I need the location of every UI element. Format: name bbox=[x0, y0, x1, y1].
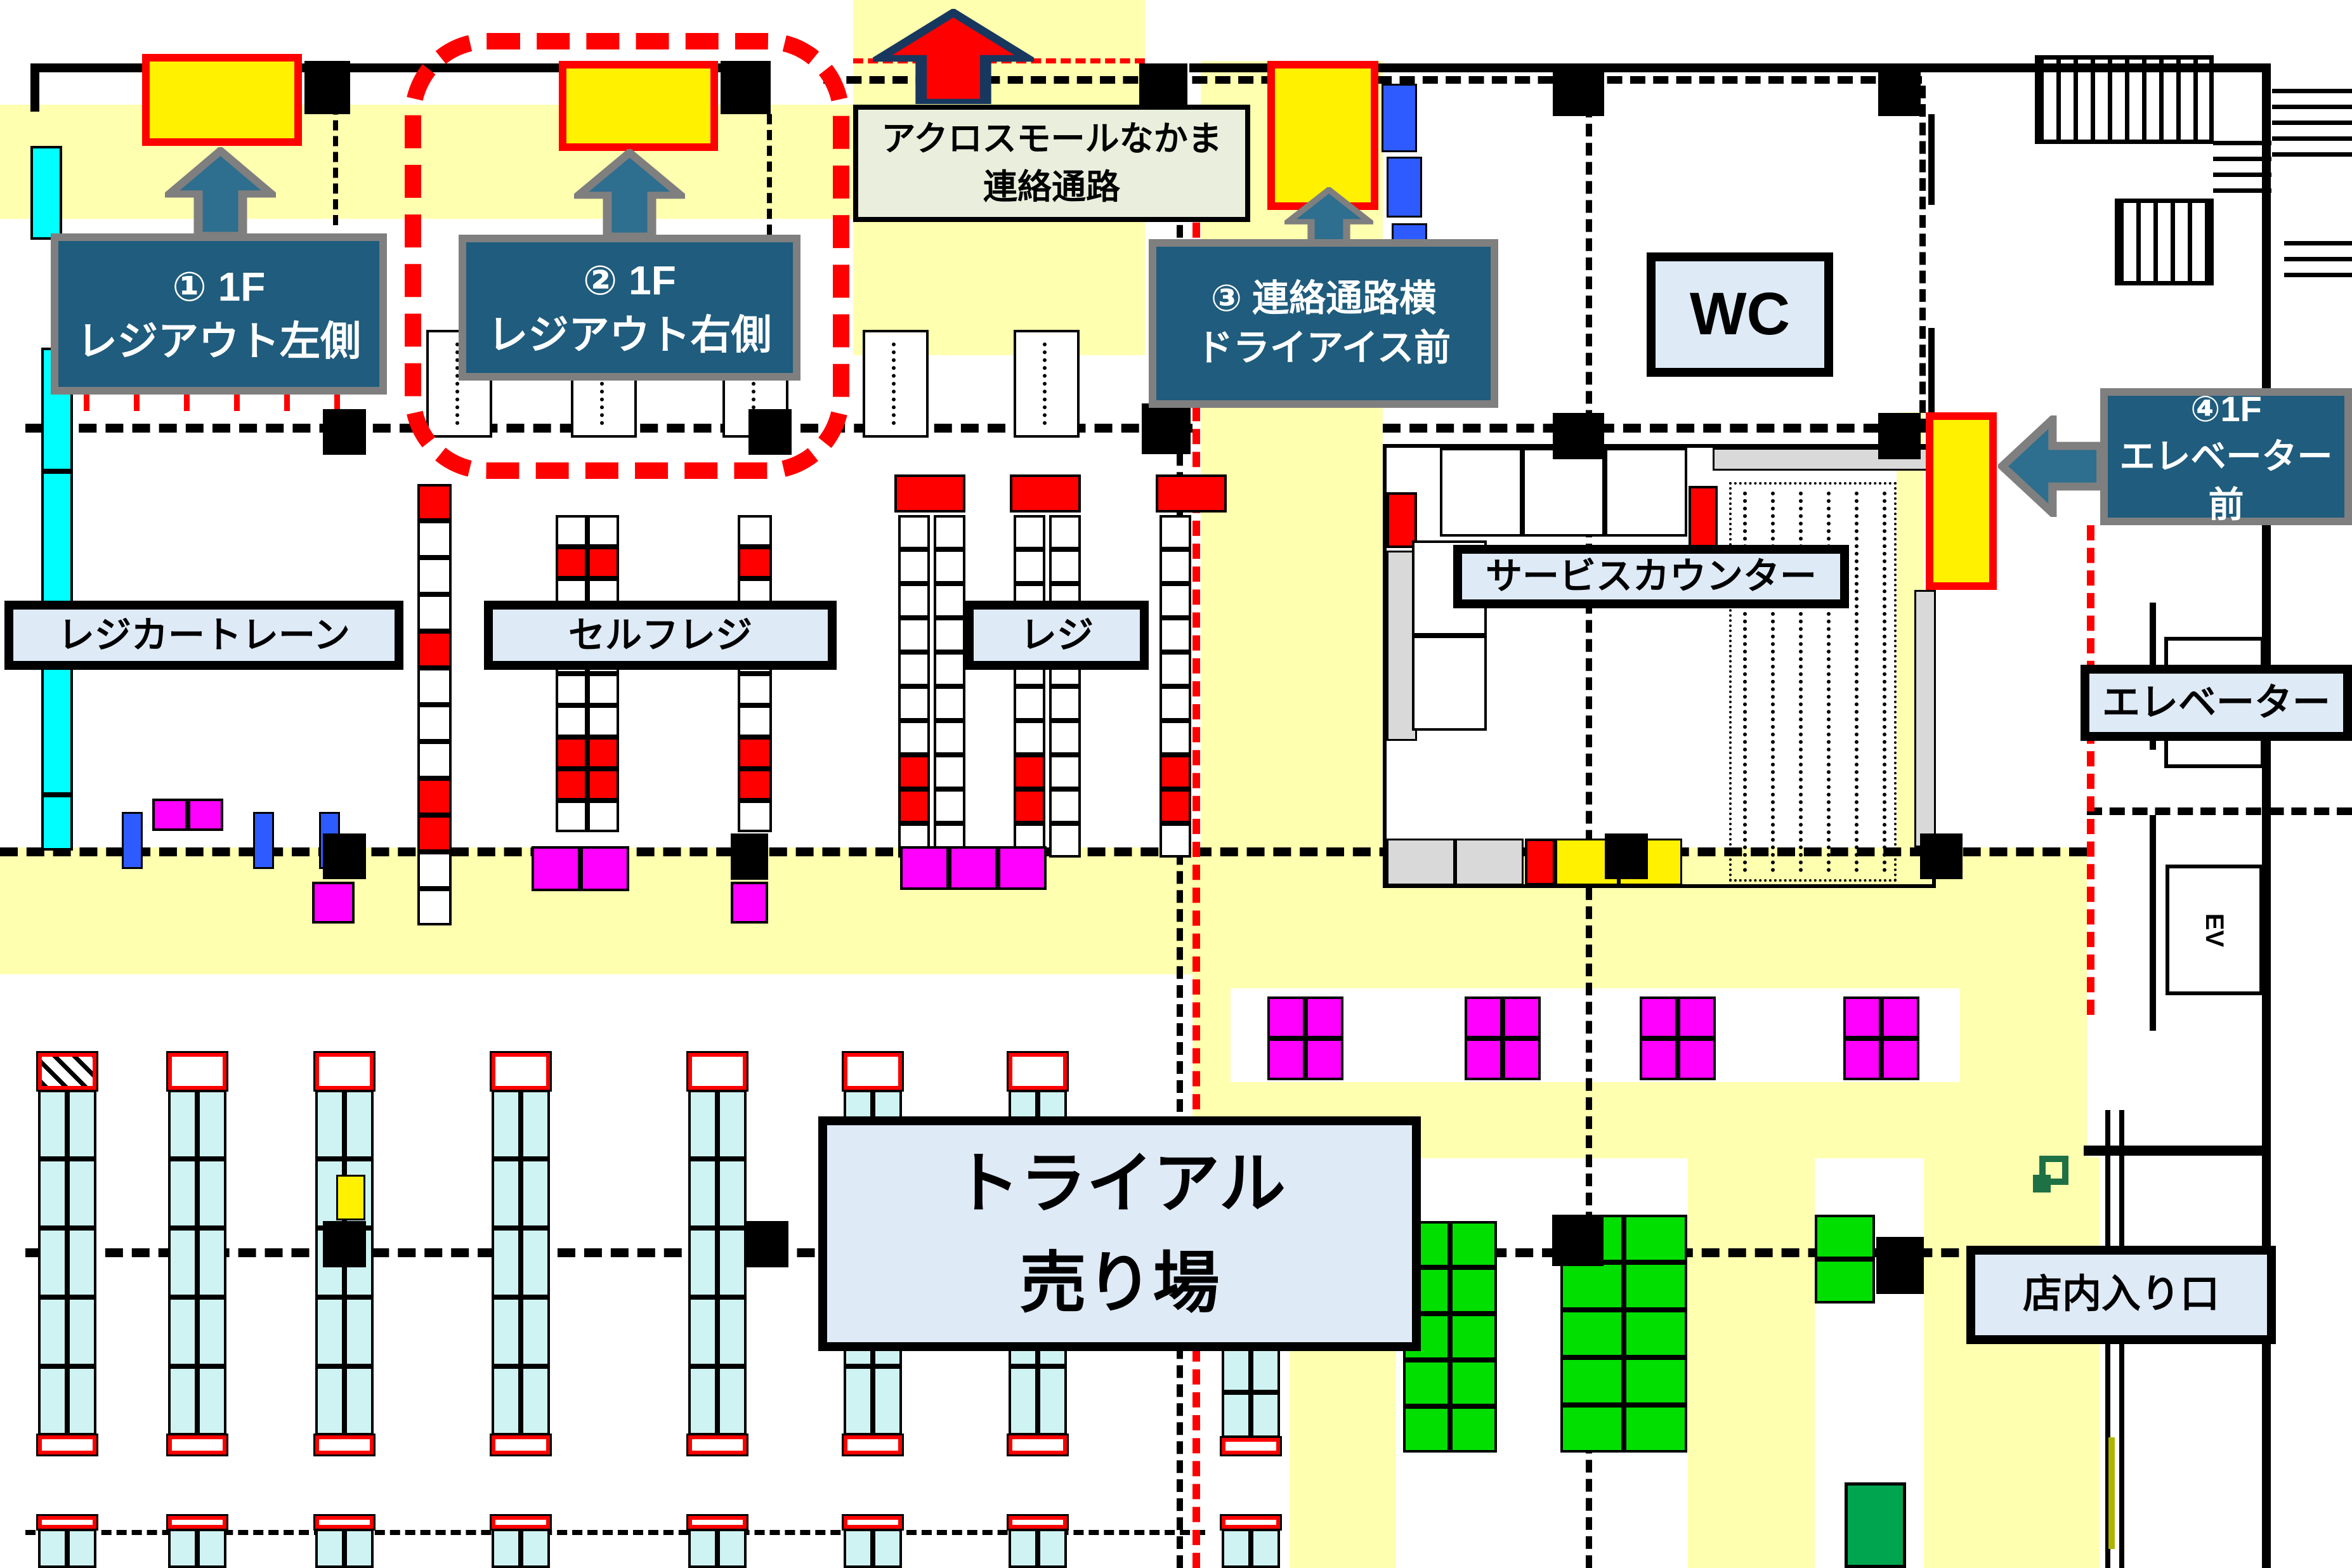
promo-table-cell bbox=[1267, 1038, 1305, 1080]
checkout-lane-cell bbox=[1014, 515, 1045, 549]
promo-table-cell bbox=[1678, 996, 1716, 1038]
green-shelf-cell bbox=[1624, 1310, 1687, 1357]
shelf-cell bbox=[1222, 1347, 1251, 1392]
green-shelf-cell bbox=[1560, 1357, 1624, 1405]
shelf-cell bbox=[492, 1366, 521, 1435]
green-shelf-cell bbox=[1450, 1406, 1497, 1453]
green-shelf-cell bbox=[1403, 1406, 1450, 1453]
shelf-cell bbox=[717, 1090, 747, 1159]
magenta-fixture bbox=[998, 846, 1047, 890]
shelf-cell bbox=[521, 1366, 550, 1435]
service-counter-text: サービスカウンター bbox=[1486, 552, 1817, 600]
checkout-lane-cell bbox=[1160, 686, 1191, 721]
selfcheckout-lane-cell bbox=[738, 547, 772, 578]
lane-cell bbox=[417, 889, 452, 925]
up-arrow-1-icon bbox=[165, 147, 276, 237]
magenta-fixture bbox=[152, 799, 188, 831]
shelf-cell bbox=[38, 1529, 67, 1568]
checkout-lane-cell bbox=[1160, 618, 1191, 652]
magenta-fixture bbox=[532, 846, 580, 891]
blue-fixture-1 bbox=[1382, 84, 1417, 152]
blue-floor-marker bbox=[122, 812, 143, 869]
shelf-cell bbox=[717, 1228, 747, 1297]
callout-passage-side-dry-ice: ③ 連絡通路横 ドライアイス前 bbox=[1149, 239, 1498, 408]
pillar bbox=[1878, 65, 1921, 116]
selfcheckout-lane-cell bbox=[587, 769, 619, 800]
checkout-lane-cell bbox=[1049, 755, 1081, 789]
shelf-cell bbox=[1251, 1347, 1280, 1392]
shelf-cap bbox=[688, 1516, 747, 1529]
shelf-cell bbox=[315, 1090, 344, 1159]
pillar bbox=[1605, 833, 1648, 879]
checkout-lane-cell bbox=[1160, 652, 1191, 686]
checkout-lane-cell bbox=[898, 549, 930, 584]
selfcheckout-lane-cell bbox=[556, 769, 587, 800]
checkout-lane-cell bbox=[934, 515, 965, 549]
lane-cell bbox=[417, 484, 452, 521]
magenta-fixture bbox=[312, 882, 355, 924]
shelf-cell bbox=[688, 1297, 717, 1366]
pillar bbox=[304, 61, 350, 114]
corner-arrow-icon-fill bbox=[2033, 1175, 2051, 1192]
green-shelf-cell bbox=[1624, 1357, 1687, 1405]
checkout-lane-cell bbox=[1049, 789, 1081, 823]
shelf-cell bbox=[168, 1090, 197, 1159]
selfcheckout-lane-cell bbox=[556, 674, 587, 705]
shelf-cell bbox=[521, 1228, 550, 1297]
selfcheckout-lane-cell bbox=[738, 674, 772, 705]
checkout-lane-cell bbox=[898, 584, 930, 618]
shelf-foot bbox=[315, 1435, 374, 1454]
elevator-text: エレベーター bbox=[2102, 678, 2330, 728]
selfcheckout-lane-cell bbox=[587, 674, 619, 705]
shelf-foot bbox=[1222, 1438, 1280, 1454]
callout-2-line1: ② 1F bbox=[583, 253, 676, 308]
shelf-cell bbox=[315, 1366, 344, 1435]
shelf-cell bbox=[1038, 1366, 1067, 1435]
label-wc: WC bbox=[1647, 252, 1833, 377]
checkout-lane-cell bbox=[1049, 823, 1081, 858]
checkout-lane-cell bbox=[898, 618, 930, 652]
pillar bbox=[745, 1221, 788, 1267]
checkout-lane-cell bbox=[1014, 549, 1045, 584]
selfcheckout-lane-cell bbox=[556, 547, 587, 578]
pillar bbox=[1920, 833, 1963, 879]
checkout-lane-cap bbox=[894, 474, 965, 513]
shelf-cell bbox=[688, 1090, 717, 1159]
shelf-cap bbox=[688, 1053, 747, 1090]
shelf-cell bbox=[492, 1159, 521, 1228]
shelf-cap bbox=[168, 1053, 226, 1090]
checkout-lane-cell bbox=[934, 755, 965, 789]
blue-floor-marker bbox=[253, 812, 274, 869]
pillar bbox=[731, 833, 768, 880]
shelf-cap bbox=[315, 1516, 374, 1529]
green-shelf-cell bbox=[1450, 1221, 1497, 1267]
pillar bbox=[1878, 413, 1921, 459]
callout-1-line1: ① 1F bbox=[173, 259, 266, 314]
checkout-text: レジ bbox=[1020, 611, 1094, 659]
shelf-cell bbox=[67, 1529, 96, 1568]
checkout-lane-cell bbox=[1160, 515, 1191, 549]
green-shelf-cell bbox=[1624, 1215, 1687, 1262]
shelf-cell bbox=[717, 1159, 747, 1228]
callout-1-line2: レジアウト左側 bbox=[77, 314, 361, 369]
callout-1f-elevator-front: ④1F エレベーター前 bbox=[2100, 388, 2352, 525]
shelf-cell bbox=[38, 1159, 67, 1228]
lane-cell bbox=[417, 815, 452, 852]
callout-2-line2: レジアウト右側 bbox=[488, 308, 772, 362]
shelf-cell bbox=[344, 1090, 374, 1159]
pillar bbox=[1142, 403, 1191, 454]
promo-table-cell bbox=[1465, 996, 1503, 1038]
shelf-cell bbox=[521, 1090, 550, 1159]
shelf-cell bbox=[521, 1297, 550, 1366]
cart-corral-line bbox=[1883, 492, 1886, 872]
label-service-counter: サービスカウンター bbox=[1453, 545, 1849, 608]
green-shelf-cell bbox=[1624, 1262, 1687, 1310]
shelf-cell bbox=[873, 1366, 902, 1435]
shelf-module bbox=[1014, 330, 1080, 438]
selfcheckout-lane-cell bbox=[738, 737, 772, 769]
checkout-lane-cell bbox=[934, 789, 965, 823]
shelf-cell bbox=[67, 1090, 96, 1159]
pillar bbox=[1876, 1237, 1924, 1294]
shelf-cell bbox=[197, 1228, 226, 1297]
label-elevator: エレベーター bbox=[2081, 665, 2352, 741]
selfcheckout-lane-cell bbox=[556, 737, 587, 769]
shelf-cap bbox=[38, 1516, 96, 1529]
promo-table-cell bbox=[1503, 996, 1541, 1038]
pillar bbox=[323, 1221, 366, 1267]
shelf-cell bbox=[315, 1529, 344, 1568]
checkout-lane-cell bbox=[898, 789, 930, 823]
checkout-lane-cell bbox=[1160, 755, 1191, 789]
checkout-lane-cell bbox=[1160, 721, 1191, 755]
left-arrow-4-icon bbox=[1998, 415, 2103, 517]
shelf-cell bbox=[844, 1366, 873, 1435]
shelf-cell bbox=[1251, 1392, 1280, 1438]
label-sales-floor: トライアル 売り場 bbox=[818, 1116, 1421, 1351]
promo-table-cell bbox=[1640, 996, 1678, 1038]
checkout-lane-cell bbox=[1014, 789, 1045, 823]
green-shelf-cell bbox=[1450, 1314, 1497, 1360]
shelf-cell bbox=[197, 1366, 226, 1435]
green-shelf-cell bbox=[1815, 1259, 1875, 1303]
shelf-cell bbox=[844, 1529, 873, 1568]
selfcheckout-lane-cell bbox=[587, 515, 619, 547]
label-checkout: レジ bbox=[965, 601, 1149, 670]
checkout-lane-cell bbox=[1160, 789, 1191, 823]
shelf-cell bbox=[521, 1159, 550, 1228]
lane-cell bbox=[417, 521, 452, 558]
label-entrance: 店内入り口 bbox=[1966, 1246, 2276, 1344]
callout-3-line2: ドライアイス前 bbox=[1196, 323, 1451, 373]
shelf-cell bbox=[492, 1297, 521, 1366]
selfcheckout-lane-cell bbox=[587, 705, 619, 737]
label-self-checkout: セルフレジ bbox=[484, 601, 837, 670]
shelf-cell bbox=[197, 1159, 226, 1228]
shelf-cell bbox=[1222, 1392, 1251, 1438]
shelf-cap bbox=[38, 1053, 96, 1090]
shelf-cell bbox=[67, 1228, 96, 1297]
shelf-cell bbox=[67, 1159, 96, 1228]
selfcheckout-lane-cell bbox=[587, 547, 619, 578]
shelf-cell bbox=[688, 1159, 717, 1228]
shelf-cell bbox=[168, 1297, 197, 1366]
shelf-cell bbox=[521, 1529, 550, 1568]
checkout-lane-cell bbox=[934, 652, 965, 686]
promo-table-cell bbox=[1678, 1038, 1716, 1080]
signage-location-2 bbox=[559, 61, 718, 151]
promo-table-cell bbox=[1465, 1038, 1503, 1080]
checkout-lane-cell bbox=[1049, 549, 1081, 584]
up-arrow-2-icon bbox=[574, 149, 685, 238]
shelf-cell bbox=[688, 1228, 717, 1297]
cart-strip bbox=[41, 795, 73, 851]
selfcheckout-lane-cell bbox=[556, 515, 587, 547]
cart-lane-text: レジカートレーン bbox=[58, 611, 350, 659]
green-shelf-cell bbox=[1624, 1405, 1687, 1453]
shelf-module bbox=[863, 330, 929, 438]
green-shelf-cell bbox=[1560, 1405, 1624, 1453]
selfcheckout-lane-cell bbox=[587, 800, 619, 832]
selfcheckout-lane-cell bbox=[738, 800, 772, 832]
selfcheckout-lane-cell bbox=[738, 705, 772, 737]
shelf-cell bbox=[717, 1297, 747, 1366]
lane-cell bbox=[417, 668, 452, 705]
shelf-cap bbox=[844, 1516, 902, 1529]
green-shelf-cell bbox=[1560, 1262, 1624, 1310]
promo-table-cell bbox=[1881, 1038, 1919, 1080]
cart-strip bbox=[30, 146, 62, 240]
shelf-cell bbox=[717, 1366, 747, 1435]
label-cart-lane: レジカートレーン bbox=[4, 601, 403, 670]
checkout-lane-cell bbox=[1049, 515, 1081, 549]
shelf-foot bbox=[492, 1435, 550, 1454]
selfcheckout-lane-cell bbox=[738, 515, 772, 547]
lane-cell bbox=[417, 852, 452, 889]
dark-green-fixture bbox=[1845, 1482, 1906, 1568]
magenta-fixture bbox=[949, 846, 998, 890]
callout-4-line1: ④1F bbox=[2190, 385, 2262, 433]
lane-cell bbox=[417, 558, 452, 594]
shelf-cell bbox=[344, 1366, 374, 1435]
callout-4-line2: エレベーター前 bbox=[2108, 433, 2344, 528]
wc-text: WC bbox=[1690, 275, 1790, 354]
sales-floor-line1: トライアル bbox=[953, 1134, 1286, 1234]
shelf-cell bbox=[197, 1529, 226, 1568]
checkout-lane-cell bbox=[934, 584, 965, 618]
shelf-cap bbox=[1009, 1516, 1067, 1529]
shelf-cap bbox=[1009, 1053, 1067, 1090]
checkout-lane-cell bbox=[1049, 721, 1081, 755]
shelf-cap bbox=[168, 1516, 226, 1529]
green-shelf-cell bbox=[1450, 1360, 1497, 1406]
checkout-lane-cell bbox=[1014, 686, 1045, 721]
shelf-foot bbox=[688, 1435, 747, 1454]
magenta-fixture bbox=[900, 846, 949, 890]
checkout-lane-cell bbox=[898, 515, 930, 549]
shelf-cell bbox=[717, 1529, 747, 1568]
cart-corral-line bbox=[1855, 492, 1859, 872]
yellow-shelf-cell bbox=[336, 1175, 365, 1220]
shelf-foot bbox=[38, 1435, 96, 1454]
shelf-cell bbox=[315, 1297, 344, 1366]
signage-location-1 bbox=[142, 54, 302, 146]
pillar bbox=[323, 833, 366, 879]
signage-location-4 bbox=[1926, 412, 1997, 590]
checkout-lane-cap bbox=[1010, 474, 1081, 513]
promo-table-cell bbox=[1267, 996, 1305, 1038]
shelf-cap bbox=[844, 1053, 902, 1090]
promo-table-cell bbox=[1503, 1038, 1541, 1080]
shelf-foot bbox=[844, 1435, 902, 1454]
pillar bbox=[1553, 65, 1604, 116]
green-shelf-cell bbox=[1450, 1267, 1497, 1314]
shelf-cell bbox=[492, 1529, 521, 1568]
magenta-fixture bbox=[580, 846, 629, 891]
lane-cell bbox=[417, 778, 452, 815]
label-across-mall-passage: アクロスモールなかま 連絡通路 bbox=[853, 105, 1250, 222]
selfcheckout-lane-cell bbox=[556, 800, 587, 832]
shelf-cell bbox=[492, 1228, 521, 1297]
store-floor-map: EV ① 1F レジアウト左側 ② 1F レジアウト右側 ③ 連絡通路横 ドライ… bbox=[0, 0, 2352, 1568]
callout-1f-regiout-right: ② 1F レジアウト右側 bbox=[459, 235, 800, 381]
checkout-lane-cell bbox=[934, 721, 965, 755]
pillar bbox=[1552, 1215, 1604, 1266]
passage-line1: アクロスモールなかま bbox=[881, 115, 1222, 164]
callout-1f-regiout-left: ① 1F レジアウト左側 bbox=[51, 233, 387, 395]
green-shelf-cell bbox=[1815, 1215, 1875, 1259]
checkout-lane-cell bbox=[898, 755, 930, 789]
shelf-cell bbox=[38, 1366, 67, 1435]
shelf-foot bbox=[1009, 1435, 1067, 1454]
blue-fixture-2 bbox=[1387, 157, 1422, 218]
passage-line2: 連絡通路 bbox=[983, 164, 1120, 212]
callout-3-line1: ③ 連絡通路横 bbox=[1211, 274, 1436, 323]
shelf-cell bbox=[38, 1090, 67, 1159]
pillar bbox=[323, 409, 366, 455]
shelf-cell bbox=[38, 1297, 67, 1366]
lane-cell bbox=[417, 631, 452, 668]
shelf-cell bbox=[873, 1529, 902, 1568]
shelf-cell bbox=[344, 1529, 374, 1568]
shelf-cell bbox=[197, 1090, 226, 1159]
shelf-module-mark bbox=[892, 343, 896, 425]
checkout-lane-cell bbox=[1160, 584, 1191, 618]
promo-table-cell bbox=[1640, 1038, 1678, 1080]
green-shelf-cell bbox=[1403, 1360, 1450, 1406]
shelf-cell bbox=[344, 1297, 374, 1366]
shelf-cap bbox=[492, 1516, 550, 1529]
promo-table-cell bbox=[1305, 996, 1343, 1038]
shelf-foot bbox=[168, 1435, 226, 1454]
shelf-cell bbox=[1009, 1366, 1038, 1435]
shelf-cell bbox=[1222, 1529, 1251, 1568]
red-up-arrow-passage-icon bbox=[873, 9, 1034, 104]
checkout-lane-cell bbox=[898, 686, 930, 721]
shelf-module-mark bbox=[1043, 343, 1047, 425]
shelf-cell bbox=[168, 1366, 197, 1435]
lane-cell bbox=[417, 742, 452, 778]
selfcheckout-lane-cell bbox=[556, 705, 587, 737]
shelf-cell bbox=[38, 1228, 67, 1297]
shelf-cap bbox=[1222, 1516, 1280, 1529]
checkout-lane-cell bbox=[1049, 686, 1081, 721]
checkout-lane-cell bbox=[898, 652, 930, 686]
shelf-cell bbox=[1251, 1529, 1280, 1568]
checkout-lane-cell bbox=[898, 721, 930, 755]
entrance-text: 店内入り口 bbox=[2023, 1269, 2219, 1321]
shelf-cell bbox=[168, 1228, 197, 1297]
promo-table-cell bbox=[1305, 1038, 1343, 1080]
shelf-cell bbox=[67, 1297, 96, 1366]
sales-floor-line2: 売り場 bbox=[1019, 1234, 1219, 1334]
magenta-fixture bbox=[188, 799, 223, 831]
shelf-cell bbox=[1038, 1529, 1067, 1568]
selfcheckout-lane-cell bbox=[738, 769, 772, 800]
promo-table-cell bbox=[1843, 1038, 1881, 1080]
checkout-lane-cap bbox=[1156, 474, 1227, 513]
shelf-cell bbox=[197, 1297, 226, 1366]
checkout-lane-cell bbox=[1160, 549, 1191, 584]
checkout-lane-cell bbox=[934, 686, 965, 721]
green-shelf-cell bbox=[1560, 1310, 1624, 1357]
selfcheckout-lane-cell bbox=[587, 737, 619, 769]
shelf-cell bbox=[688, 1366, 717, 1435]
shelf-cell bbox=[67, 1366, 96, 1435]
lane-cell bbox=[417, 594, 452, 631]
checkout-lane-cell bbox=[1160, 823, 1191, 858]
promo-table-cell bbox=[1843, 996, 1881, 1038]
checkout-lane-cell bbox=[934, 549, 965, 584]
checkout-lane-cell bbox=[934, 618, 965, 652]
self-checkout-text: セルフレジ bbox=[568, 611, 752, 659]
shelf-cap bbox=[315, 1053, 374, 1090]
shelf-cell bbox=[1009, 1529, 1038, 1568]
checkout-lane-cell bbox=[1014, 721, 1045, 755]
shelf-cell bbox=[492, 1090, 521, 1159]
shelf-cell bbox=[688, 1529, 717, 1568]
shelf-cell bbox=[168, 1159, 197, 1228]
promo-table-cell bbox=[1881, 996, 1919, 1038]
magenta-fixture bbox=[731, 882, 768, 924]
pillar bbox=[1553, 413, 1604, 459]
shelf-cap bbox=[492, 1053, 550, 1090]
checkout-lane-cell bbox=[1014, 755, 1045, 789]
lane-cell bbox=[417, 705, 452, 742]
shelf-cell bbox=[168, 1529, 197, 1568]
